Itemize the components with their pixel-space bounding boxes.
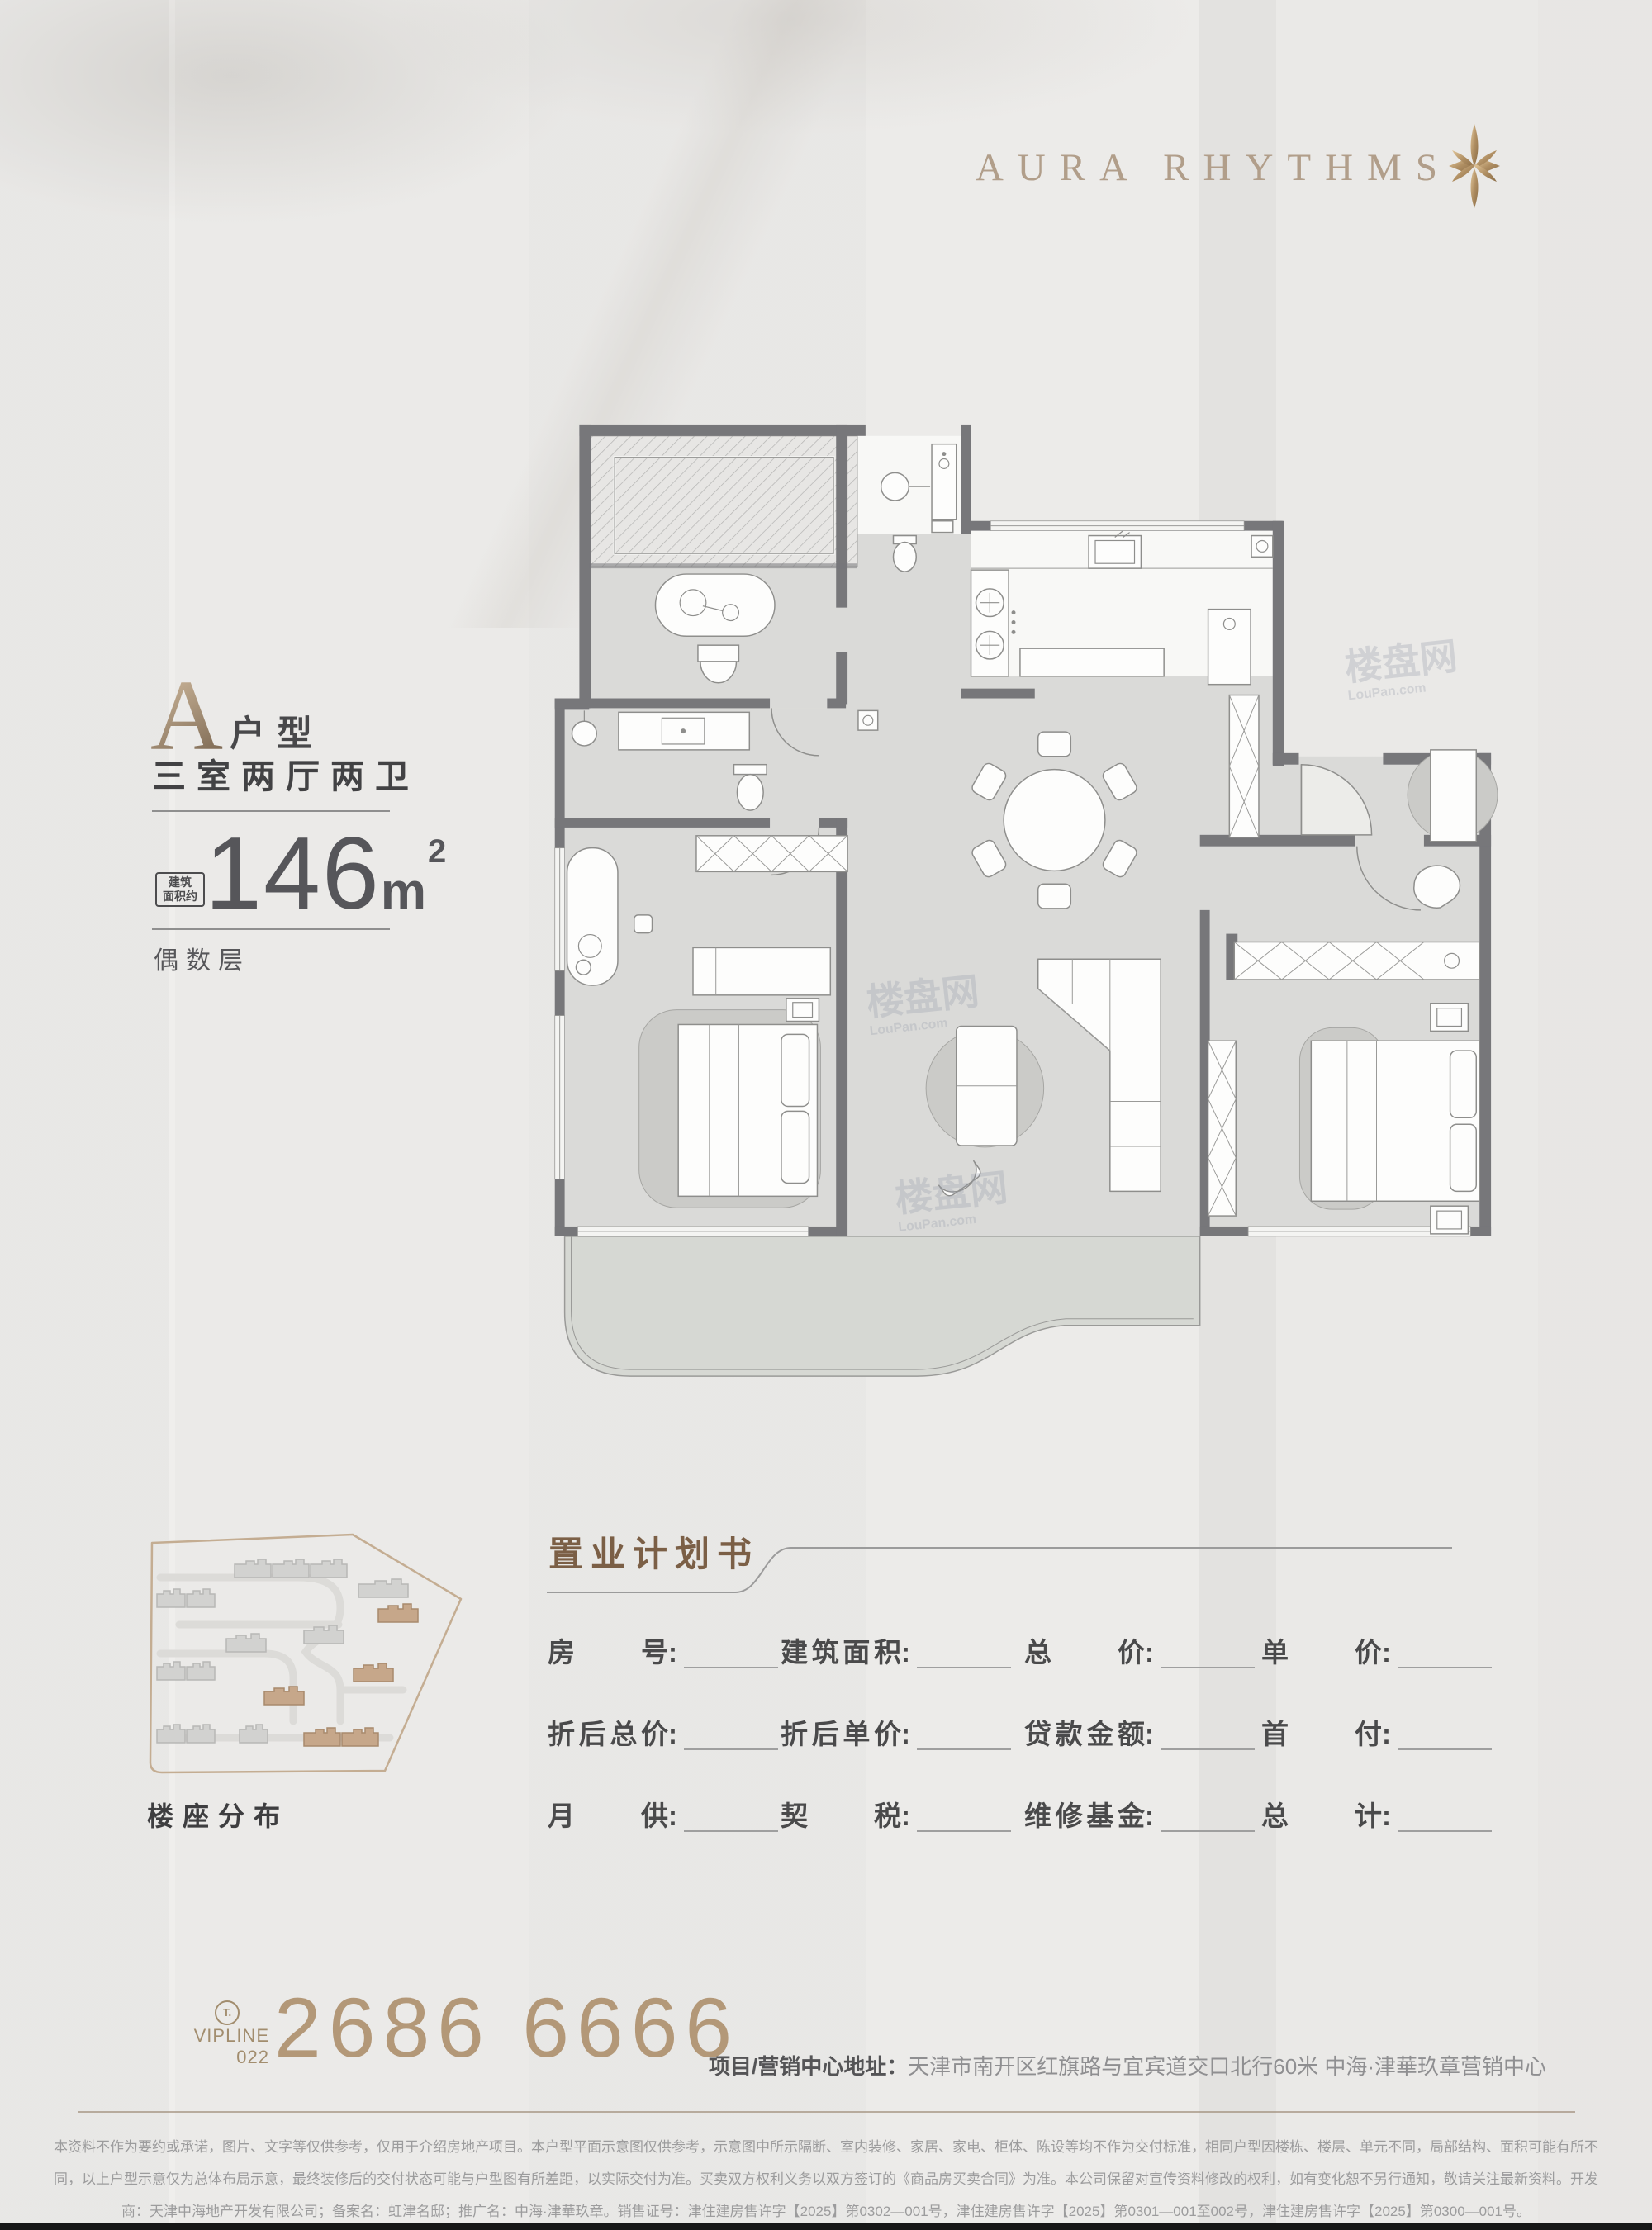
form-field: 月供: — [548, 1774, 781, 1856]
form-field: 总价: — [1024, 1611, 1261, 1692]
form-field: 首付: — [1261, 1692, 1481, 1774]
form-field: 契税: — [781, 1774, 1024, 1856]
fill-in-line[interactable] — [684, 1639, 778, 1668]
form-field: 单价: — [1261, 1611, 1481, 1692]
unit-layout: 三室两厅两卫 — [152, 748, 420, 798]
sales-center-address: 项目/营销中心地址：天津市南开区红旗路与宜宾道交口北行60米 中海·津華玖章营销… — [709, 2050, 1546, 2081]
hotline-number[interactable]: 2686 6666 — [274, 1986, 739, 2070]
divider — [152, 810, 390, 812]
coffee-table — [957, 1026, 1017, 1146]
fill-in-line[interactable] — [1398, 1721, 1492, 1750]
balcony — [565, 1236, 1200, 1376]
fill-in-line[interactable] — [1398, 1803, 1492, 1832]
area-note-box: 建筑 面积约 — [155, 872, 205, 907]
footer-divider — [78, 2111, 1575, 2113]
purchase-plan-form: 房号: 建筑面积: 总价: 单价: 折后总价: 折后单价: 贷款金额: 首付: … — [548, 1611, 1489, 1856]
site-map — [142, 1530, 469, 1782]
fill-in-line[interactable] — [684, 1721, 778, 1750]
fill-in-line[interactable] — [917, 1639, 1011, 1668]
floor-plan: 楼盘网 LouPan.com 楼盘网 LouPan.com 楼盘网 LouPan… — [533, 406, 1498, 1396]
wardrobe-1 — [696, 836, 847, 872]
floor-note: 偶数层 — [154, 940, 250, 976]
form-field: 总计: — [1261, 1774, 1481, 1856]
fill-in-line[interactable] — [917, 1721, 1011, 1750]
fill-in-line[interactable] — [1161, 1639, 1255, 1668]
fill-in-line[interactable] — [1161, 1721, 1255, 1750]
form-field: 房号: — [548, 1611, 781, 1692]
form-field: 贷款金额: — [1024, 1692, 1261, 1774]
form-field: 维修基金: — [1024, 1774, 1261, 1856]
poster-page: AURA RHYTHMS A 户型 三室两厅两卫 建筑 面积约 146m2 偶数… — [0, 0, 1652, 2230]
vipline-label: VIPLINE 022 — [173, 2025, 269, 2068]
svg-text:楼盘网: 楼盘网 — [1343, 635, 1460, 689]
fill-in-line[interactable] — [684, 1803, 778, 1832]
fill-in-line[interactable] — [1398, 1639, 1492, 1668]
form-field: 建筑面积: — [781, 1611, 1024, 1692]
fleur-ornament-icon — [1447, 122, 1502, 210]
bottom-edge-bar — [0, 2223, 1652, 2230]
form-field: 折后总价: — [548, 1692, 781, 1774]
divider — [152, 928, 390, 930]
form-field: 折后单价: — [781, 1692, 1024, 1774]
fill-in-line[interactable] — [1161, 1803, 1255, 1832]
map-label: 楼座分布 — [147, 1796, 289, 1834]
terrace-hatch — [591, 436, 857, 567]
fill-in-line[interactable] — [917, 1803, 1011, 1832]
legal-disclaimer: 本资料不作为要约或承诺，图片、文字等仅供参考，仅用于介绍房地产项目。本户型平面示… — [0, 2131, 1652, 2228]
unit-area: 146m2 — [205, 823, 448, 925]
phone-icon: T. — [215, 2000, 240, 2025]
brand-logo-text: AURA RHYTHMS — [836, 145, 1451, 190]
form-title-rule — [545, 1535, 1454, 1597]
